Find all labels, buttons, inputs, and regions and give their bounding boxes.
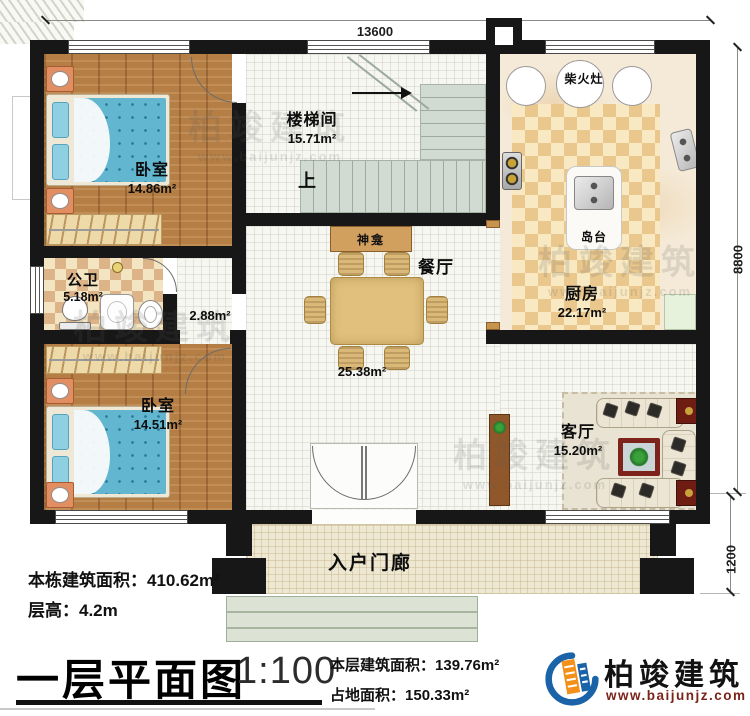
brand-url: www.baijunjz.com	[606, 688, 747, 703]
wall-bedroom-bottom-right	[232, 344, 246, 510]
hallway-floor	[177, 258, 232, 344]
stair-up-label: 上	[294, 167, 320, 193]
wall-bedroom-bottom-top	[30, 330, 180, 344]
bedroom-bottom-label: 卧室 14.51m²	[108, 398, 208, 432]
hallway-area-label: 2.88m²	[180, 308, 240, 323]
title-underline-thin	[0, 708, 375, 710]
pillow-icon	[52, 102, 69, 138]
window	[30, 266, 44, 314]
wall-kitchen-bottom	[486, 330, 710, 344]
nightstand-icon	[46, 482, 74, 508]
shrine: 神龛	[330, 226, 412, 252]
entry-door-opening	[312, 510, 416, 524]
stairwell-label: 楼梯间 15.71m²	[262, 112, 362, 146]
wall-bedroom-bottom-top-stub	[230, 330, 246, 344]
dimension-line-top	[45, 20, 711, 21]
dining-chair-icon	[338, 252, 364, 276]
total-area-label: 本栋建筑面积：	[28, 571, 147, 590]
floor-area-text: 本层建筑面积：139.76m²	[330, 654, 499, 675]
window	[545, 40, 655, 54]
island-label: 岛台	[566, 228, 622, 245]
living-label: 客厅 15.20m²	[528, 424, 628, 458]
toilet-tank-icon	[59, 322, 91, 330]
door-jamb	[486, 220, 500, 228]
floor-height-value: 4.2m	[79, 601, 118, 620]
wardrobe-icon	[46, 214, 162, 245]
floor-plan-canvas: 神龛 柴火灶 岛台	[0, 0, 750, 716]
dining-table-icon	[330, 277, 424, 345]
brand-logo-icon	[544, 650, 600, 708]
pillow-icon	[52, 144, 69, 180]
wall-kitchen-left	[486, 54, 500, 220]
nightstand-icon	[46, 378, 74, 404]
pillow-icon	[52, 414, 69, 450]
window	[307, 40, 430, 54]
stove-burner-icon	[506, 66, 546, 106]
door-jamb	[486, 322, 500, 330]
porch-steps	[226, 596, 478, 642]
wall-right	[696, 40, 710, 524]
porch-pillar	[640, 558, 694, 594]
bathroom-door-arc	[143, 258, 177, 292]
entry-door-leaf	[365, 446, 367, 500]
dimension-lower-value: 1200	[724, 540, 739, 580]
island-sink-icon	[574, 176, 614, 210]
wall-bedroom-top-bottom	[30, 246, 246, 258]
stair-flight-bottom	[300, 160, 486, 213]
wall-hall-stub	[232, 258, 246, 294]
kitchen-label: 厨房 22.17m²	[532, 286, 632, 320]
stair-direction-arrow-icon	[401, 87, 412, 99]
stair-direction-line	[352, 92, 402, 94]
bedroom-top-label: 卧室 14.86m²	[102, 162, 202, 196]
entry-door-leaf	[361, 446, 363, 500]
window	[68, 40, 190, 54]
scale-text: 1:100	[236, 650, 336, 693]
dining-chair-icon	[304, 296, 326, 324]
dimension-right-value: 8800	[731, 232, 746, 288]
chimney	[486, 18, 522, 54]
title-underline	[16, 700, 322, 705]
stair-flight-right	[420, 84, 486, 160]
porch-pillar	[212, 558, 266, 594]
floor-area-label: 本层建筑面积：	[330, 657, 435, 674]
floor-area-value: 139.76m²	[435, 657, 499, 674]
wall-stair-bottom	[246, 213, 486, 226]
window	[55, 510, 188, 524]
bathroom-sink-icon	[138, 300, 163, 329]
dimension-top-value: 13600	[320, 24, 430, 39]
land-area-label: 占地面积：	[330, 687, 405, 704]
plant-icon	[628, 446, 650, 468]
wall-bathroom-right	[163, 294, 177, 330]
wardrobe-icon	[46, 346, 162, 374]
total-area-value: 410.62m²	[147, 571, 220, 590]
plant-icon	[492, 420, 507, 435]
dining-area-label: 25.38m²	[326, 364, 398, 379]
land-area-value: 150.33m²	[405, 687, 469, 704]
wall-bedroom-top-right	[232, 103, 246, 246]
cooktop-icon	[502, 152, 522, 190]
bathroom-label: 公卫 5.18m²	[48, 272, 118, 304]
land-area-text: 占地面积：150.33m²	[330, 684, 469, 705]
stove-label: 柴火灶	[548, 70, 620, 87]
fridge-icon	[664, 294, 696, 330]
window	[545, 510, 670, 524]
porch-pillar	[226, 524, 252, 556]
nightstand-icon	[46, 188, 74, 214]
page-title: 一层平面图	[16, 646, 246, 708]
porch-label: 入户门廊	[290, 548, 450, 575]
floor-height-text: 层高：4.2m	[28, 596, 118, 621]
porch-pillar	[650, 524, 676, 556]
nightstand-icon	[46, 66, 74, 92]
total-area-text: 本栋建筑面积：410.62m²	[28, 566, 220, 591]
dining-label: 餐厅	[404, 258, 468, 278]
floor-height-label: 层高：	[28, 601, 79, 620]
dining-chair-icon	[426, 296, 448, 324]
